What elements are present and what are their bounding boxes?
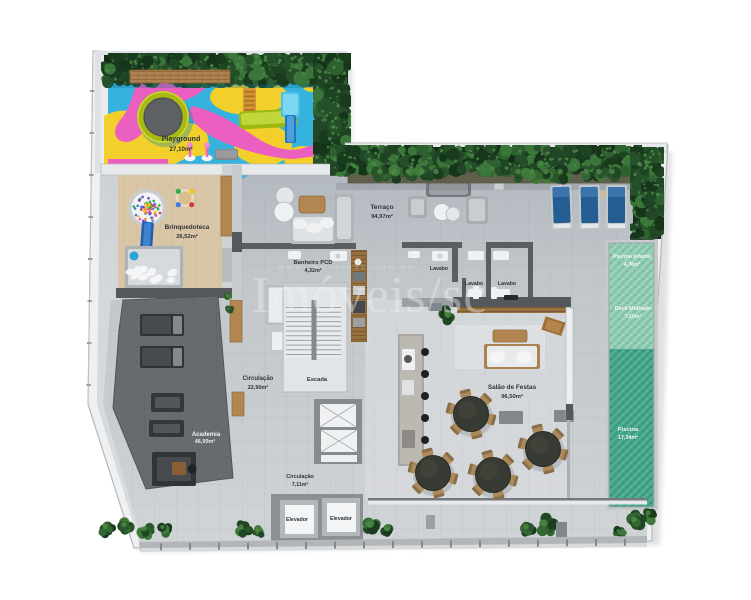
svg-text:Elevador: Elevador [286,517,308,523]
svg-text:7,16m²: 7,16m² [625,314,642,320]
svg-text:22,90m²: 22,90m² [248,384,269,391]
svg-text:Lavabo: Lavabo [498,281,516,287]
svg-text:WWW.IMOVEISSC.COM.BR: WWW.IMOVEISSC.COM.BR [278,265,415,271]
svg-text:Salão de Festas: Salão de Festas [488,384,537,391]
svg-text:Deck Molhado: Deck Molhado [615,306,652,312]
svg-text:Piscina Infantil: Piscina Infantil [613,254,652,260]
svg-text:4,76m²: 4,76m² [624,262,641,268]
svg-text:Piscina: Piscina [618,427,639,433]
svg-text:17,34m²: 17,34m² [618,435,638,441]
svg-text:Circulação: Circulação [286,474,314,480]
svg-text:96,50m²: 96,50m² [501,393,523,400]
svg-text:26,52m²: 26,52m² [176,233,198,240]
svg-text:Terraço: Terraço [371,204,394,211]
svg-text:Escada: Escada [307,377,328,383]
svg-text:Circulação: Circulação [243,376,274,382]
svg-text:Elevador: Elevador [330,516,352,522]
svg-text:Imóveis/sc: Imóveis/sc [252,267,487,324]
svg-text:46,99m²: 46,99m² [195,438,216,445]
svg-text:94,97m²: 94,97m² [371,213,393,220]
svg-text:Brinquedoteca: Brinquedoteca [165,224,210,231]
svg-text:Playground: Playground [162,136,201,143]
svg-text:Academia: Academia [192,432,221,438]
svg-text:7,11m²: 7,11m² [292,482,308,488]
svg-text:27,10m²: 27,10m² [169,146,192,153]
